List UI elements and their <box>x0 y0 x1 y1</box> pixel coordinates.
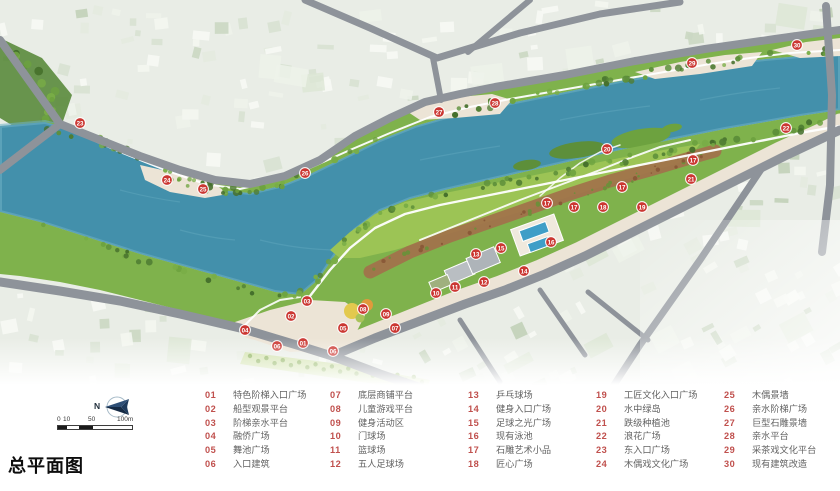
master-plan-page: 0102030405060607080910111213141516171717… <box>0 0 840 491</box>
map-marker-29: 29 <box>687 58 698 69</box>
legend-item-label: 融侨广场 <box>233 430 270 444</box>
svg-text:11: 11 <box>452 284 459 291</box>
scale-tick: 0 <box>57 416 61 423</box>
map-marker-16: 16 <box>546 237 557 248</box>
legend-item-29: 29采茶戏文化平台 <box>724 444 816 458</box>
legend-item-23: 23东入口广场 <box>596 444 698 458</box>
legend-item-number: 03 <box>205 417 222 431</box>
svg-text:12: 12 <box>481 279 488 286</box>
legend-item-number: 07 <box>330 389 347 403</box>
legend-item-09: 09健身活动区 <box>330 417 413 431</box>
legend-item-10: 10门球场 <box>330 430 413 444</box>
legend-item-label: 亲水平台 <box>752 430 789 444</box>
svg-text:17: 17 <box>544 200 551 207</box>
legend-item-label: 现有建筑改造 <box>752 458 807 472</box>
svg-text:13: 13 <box>473 251 480 258</box>
scale-labels: 0 10 50 100m <box>57 416 133 424</box>
legend-item-number: 18 <box>468 458 485 472</box>
legend-item-number: 27 <box>724 417 741 431</box>
legend-item-03: 03阶梯亲水平台 <box>205 417 307 431</box>
map-marker-17: 17 <box>569 202 580 213</box>
legend-item-label: 阶梯亲水平台 <box>233 417 288 431</box>
map-marker-02: 02 <box>286 311 297 322</box>
map-marker-11: 11 <box>450 282 461 293</box>
map-marker-21: 21 <box>686 174 697 185</box>
svg-text:26: 26 <box>302 170 309 177</box>
legend-item-17: 17石雕艺术小品 <box>468 444 551 458</box>
scale-tick: 50 <box>88 416 95 423</box>
legend-item-label: 采茶戏文化平台 <box>752 444 816 458</box>
legend-item-number: 22 <box>596 430 613 444</box>
legend-item-number: 05 <box>205 444 222 458</box>
legend-item-26: 26亲水阶梯广场 <box>724 403 816 417</box>
corner-fade <box>640 220 840 385</box>
legend-item-number: 28 <box>724 430 741 444</box>
legend-item-number: 09 <box>330 417 347 431</box>
legend-item-01: 01特色阶梯入口广场 <box>205 389 307 403</box>
svg-text:17: 17 <box>619 184 626 191</box>
legend-item-number: 08 <box>330 403 347 417</box>
legend-item-number: 14 <box>468 403 485 417</box>
svg-text:07: 07 <box>392 325 399 332</box>
legend-column: 25木偶景墙26亲水阶梯广场27巨型石雕景墙28亲水平台29采茶戏文化平台30现… <box>724 389 816 472</box>
map-marker-12: 12 <box>479 277 490 288</box>
legend-item-number: 06 <box>205 458 222 472</box>
legend-item-label: 水中绿岛 <box>624 403 661 417</box>
legend-item-label: 健身入口广场 <box>496 403 551 417</box>
legend-item-label: 浪花广场 <box>624 430 661 444</box>
legend-item-20: 20水中绿岛 <box>596 403 698 417</box>
legend-item-label: 木偶景墙 <box>752 389 789 403</box>
legend-item-label: 木偶戏文化广场 <box>624 458 688 472</box>
legend-item-label: 石雕艺术小品 <box>496 444 551 458</box>
site-plan-map: 0102030405060607080910111213141516171717… <box>0 0 840 385</box>
legend-item-04: 04融侨广场 <box>205 430 307 444</box>
page-title: 总平面图 <box>8 452 84 478</box>
legend-item-number: 29 <box>724 444 741 458</box>
map-marker-17: 17 <box>542 198 553 209</box>
legend-item-15: 15足球之光广场 <box>468 417 551 431</box>
legend-item-label: 巨型石雕景墙 <box>752 417 807 431</box>
map-marker-15: 15 <box>496 243 507 254</box>
legend-item-number: 04 <box>205 430 222 444</box>
legend-item-number: 01 <box>205 389 222 403</box>
legend-item-number: 17 <box>468 444 485 458</box>
svg-text:14: 14 <box>521 268 528 275</box>
legend-item-19: 19工匠文化入口广场 <box>596 389 698 403</box>
legend-item-11: 11篮球场 <box>330 444 413 458</box>
map-marker-26: 26 <box>300 168 311 179</box>
legend-item-number: 23 <box>596 444 613 458</box>
svg-text:17: 17 <box>571 204 578 211</box>
map-marker-17: 17 <box>688 155 699 166</box>
legend-item-18: 18匠心广场 <box>468 458 551 472</box>
map-marker-05: 05 <box>338 323 349 334</box>
map-marker-08: 08 <box>358 304 369 315</box>
legend-item-label: 现有泳池 <box>496 430 533 444</box>
legend-item-07: 07底层商铺平台 <box>330 389 413 403</box>
legend-item-label: 儿童游戏平台 <box>358 403 413 417</box>
scale-tick: 100m <box>117 416 133 423</box>
svg-text:02: 02 <box>288 313 295 320</box>
svg-text:20: 20 <box>604 146 611 153</box>
legend-item-label: 舞池广场 <box>233 444 270 458</box>
svg-text:15: 15 <box>498 245 505 252</box>
legend: 01特色阶梯入口广场02船型观景平台03阶梯亲水平台04融侨广场05舞池广场06… <box>205 389 835 475</box>
map-marker-20: 20 <box>602 144 613 155</box>
legend-item-21: 21跌级种植池 <box>596 417 698 431</box>
map-marker-04: 04 <box>240 325 251 336</box>
legend-item-number: 30 <box>724 458 741 472</box>
legend-item-06: 06入口建筑 <box>205 458 307 472</box>
svg-text:03: 03 <box>304 298 311 305</box>
north-arrow: N <box>88 396 134 418</box>
legend-item-number: 13 <box>468 389 485 403</box>
map-marker-09: 09 <box>381 309 392 320</box>
map-marker-17: 17 <box>617 182 628 193</box>
legend-item-28: 28亲水平台 <box>724 430 816 444</box>
scale-tick: 10 <box>63 416 70 423</box>
legend-column: 13乒乓球场14健身入口广场15足球之光广场16现有泳池17石雕艺术小品18匠心… <box>468 389 551 472</box>
legend-item-number: 21 <box>596 417 613 431</box>
legend-item-number: 02 <box>205 403 222 417</box>
svg-text:10: 10 <box>433 290 440 297</box>
legend-item-02: 02船型观景平台 <box>205 403 307 417</box>
legend-item-08: 08儿童游戏平台 <box>330 403 413 417</box>
north-label: N <box>94 401 100 411</box>
legend-item-25: 25木偶景墙 <box>724 389 816 403</box>
legend-item-number: 24 <box>596 458 613 472</box>
legend-column: 19工匠文化入口广场20水中绿岛21跌级种植池22浪花广场23东入口广场24木偶… <box>596 389 698 472</box>
map-marker-25: 25 <box>198 184 209 195</box>
legend-item-27: 27巨型石雕景墙 <box>724 417 816 431</box>
map-marker-23: 23 <box>75 118 86 129</box>
legend-item-number: 19 <box>596 389 613 403</box>
legend-item-label: 底层商铺平台 <box>358 389 413 403</box>
svg-text:04: 04 <box>242 327 249 334</box>
map-marker-24: 24 <box>162 175 173 186</box>
legend-item-label: 船型观景平台 <box>233 403 288 417</box>
legend-item-label: 匠心广场 <box>496 458 533 472</box>
map-marker-19: 19 <box>637 202 648 213</box>
legend-item-label: 健身活动区 <box>358 417 404 431</box>
svg-text:08: 08 <box>360 306 367 313</box>
legend-item-14: 14健身入口广场 <box>468 403 551 417</box>
legend-item-number: 10 <box>330 430 347 444</box>
scale-bar: 0 10 50 100m <box>57 416 133 430</box>
map-marker-18: 18 <box>598 202 609 213</box>
legend-item-30: 30现有建筑改造 <box>724 458 816 472</box>
legend-item-22: 22浪花广场 <box>596 430 698 444</box>
legend-item-label: 五人足球场 <box>358 458 404 472</box>
svg-text:18: 18 <box>600 204 607 211</box>
legend-item-label: 入口建筑 <box>233 458 270 472</box>
legend-item-label: 亲水阶梯广场 <box>752 403 807 417</box>
map-marker-07: 07 <box>390 323 401 334</box>
legend-item-number: 25 <box>724 389 741 403</box>
legend-item-label: 东入口广场 <box>624 444 670 458</box>
legend-item-number: 11 <box>330 444 347 458</box>
legend-item-label: 门球场 <box>358 430 386 444</box>
svg-text:27: 27 <box>436 109 443 116</box>
legend-item-number: 20 <box>596 403 613 417</box>
legend-item-label: 乒乓球场 <box>496 389 533 403</box>
legend-column: 07底层商铺平台08儿童游戏平台09健身活动区10门球场11篮球场12五人足球场 <box>330 389 413 472</box>
scale-bar-segments <box>57 425 133 430</box>
legend-item-number: 26 <box>724 403 741 417</box>
svg-text:28: 28 <box>492 100 499 107</box>
legend-item-label: 特色阶梯入口广场 <box>233 389 307 403</box>
legend-item-05: 05舞池广场 <box>205 444 307 458</box>
legend-item-label: 足球之光广场 <box>496 417 551 431</box>
site-plan-canvas: 0102030405060607080910111213141516171717… <box>0 0 840 385</box>
legend-item-12: 12五人足球场 <box>330 458 413 472</box>
svg-text:16: 16 <box>548 239 555 246</box>
legend-item-13: 13乒乓球场 <box>468 389 551 403</box>
svg-text:30: 30 <box>794 42 801 49</box>
legend-item-label: 工匠文化入口广场 <box>624 389 698 403</box>
svg-text:21: 21 <box>688 176 695 183</box>
map-marker-30: 30 <box>792 40 803 51</box>
legend-item-16: 16现有泳池 <box>468 430 551 444</box>
map-marker-28: 28 <box>490 98 501 109</box>
svg-text:23: 23 <box>77 120 84 127</box>
map-marker-10: 10 <box>431 288 442 299</box>
map-marker-22: 22 <box>781 123 792 134</box>
legend-item-number: 15 <box>468 417 485 431</box>
svg-text:25: 25 <box>200 186 207 193</box>
map-marker-13: 13 <box>471 249 482 260</box>
map-marker-03: 03 <box>302 296 313 307</box>
map-marker-14: 14 <box>519 266 530 277</box>
legend-item-number: 12 <box>330 458 347 472</box>
legend-column: 01特色阶梯入口广场02船型观景平台03阶梯亲水平台04融侨广场05舞池广场06… <box>205 389 307 472</box>
map-marker-27: 27 <box>434 107 445 118</box>
legend-item-24: 24木偶戏文化广场 <box>596 458 698 472</box>
svg-text:24: 24 <box>164 177 171 184</box>
svg-text:05: 05 <box>340 325 347 332</box>
legend-item-label: 跌级种植池 <box>624 417 670 431</box>
svg-text:19: 19 <box>639 204 646 211</box>
legend-item-label: 篮球场 <box>358 444 386 458</box>
svg-text:17: 17 <box>690 157 697 164</box>
svg-text:22: 22 <box>783 125 790 132</box>
svg-text:29: 29 <box>689 60 696 67</box>
legend-item-number: 16 <box>468 430 485 444</box>
svg-text:09: 09 <box>383 311 390 318</box>
